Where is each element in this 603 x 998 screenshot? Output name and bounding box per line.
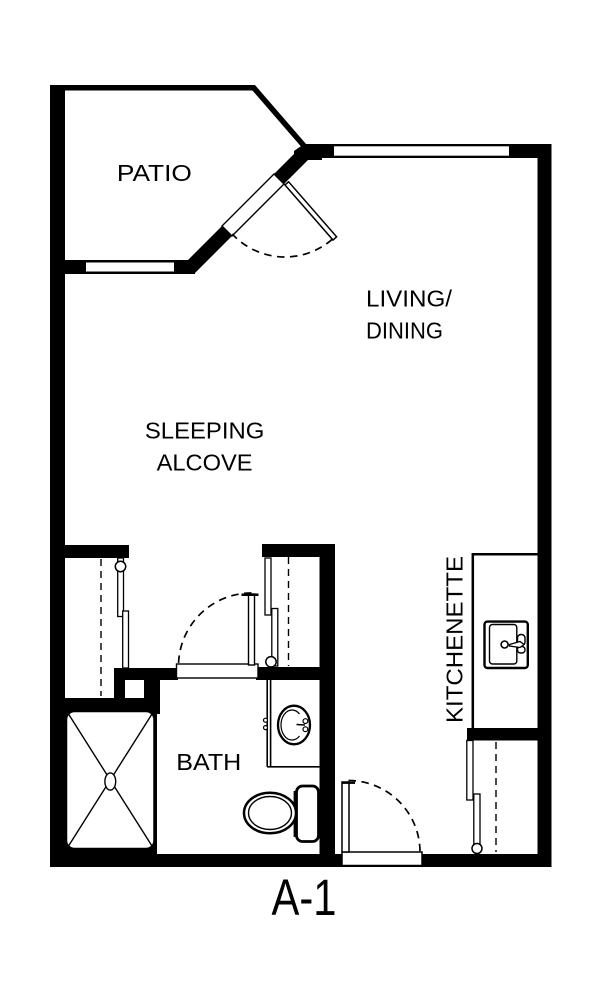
svg-text:SLEEPING: SLEEPING xyxy=(145,418,265,444)
svg-text:PATIO: PATIO xyxy=(117,160,192,186)
svg-text:LIVING/: LIVING/ xyxy=(366,286,452,312)
svg-text:BATH: BATH xyxy=(176,749,241,775)
svg-text:KITCHENETTE: KITCHENETTE xyxy=(442,556,468,723)
svg-text:DINING: DINING xyxy=(366,318,443,344)
svg-text:A-1: A-1 xyxy=(272,869,337,926)
svg-text:ALCOVE: ALCOVE xyxy=(157,450,253,476)
